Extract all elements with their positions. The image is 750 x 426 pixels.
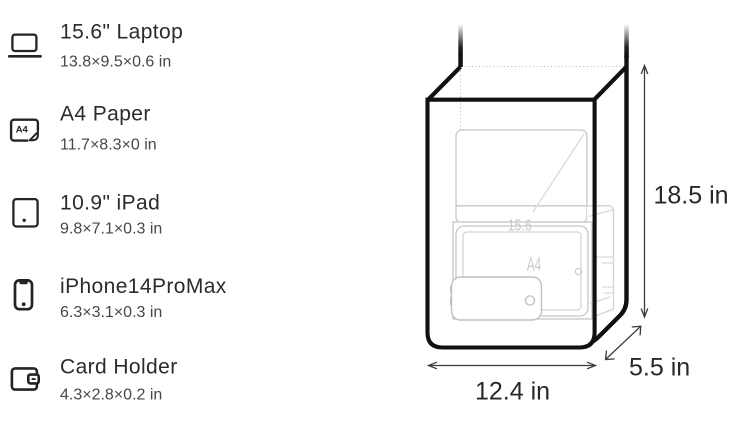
svg-text:A4: A4 <box>16 124 29 135</box>
svg-text:18.5 in: 18.5 in <box>654 182 729 210</box>
svg-text:Card Holder: Card Holder <box>60 356 178 379</box>
svg-text:15.6: 15.6 <box>508 218 532 235</box>
svg-text:A4: A4 <box>527 255 542 276</box>
svg-text:9.8×7.1×0.3 in: 9.8×7.1×0.3 in <box>60 221 162 238</box>
svg-text:11.7×8.3×0 in: 11.7×8.3×0 in <box>60 136 157 153</box>
svg-text:iPhone14ProMax: iPhone14ProMax <box>60 275 227 298</box>
svg-text:12.4 in: 12.4 in <box>475 378 550 406</box>
svg-text:4.3×2.8×0.2 in: 4.3×2.8×0.2 in <box>60 386 162 403</box>
svg-text:10.9" iPad: 10.9" iPad <box>60 191 160 214</box>
svg-text:13.8×9.5×0.6 in: 13.8×9.5×0.6 in <box>60 53 171 70</box>
svg-text:A4 Paper: A4 Paper <box>60 103 151 126</box>
svg-text:15.6" Laptop: 15.6" Laptop <box>60 20 183 43</box>
svg-text:6.3×3.1×0.3 in: 6.3×3.1×0.3 in <box>60 304 162 321</box>
svg-text:5.5 in: 5.5 in <box>629 354 690 382</box>
